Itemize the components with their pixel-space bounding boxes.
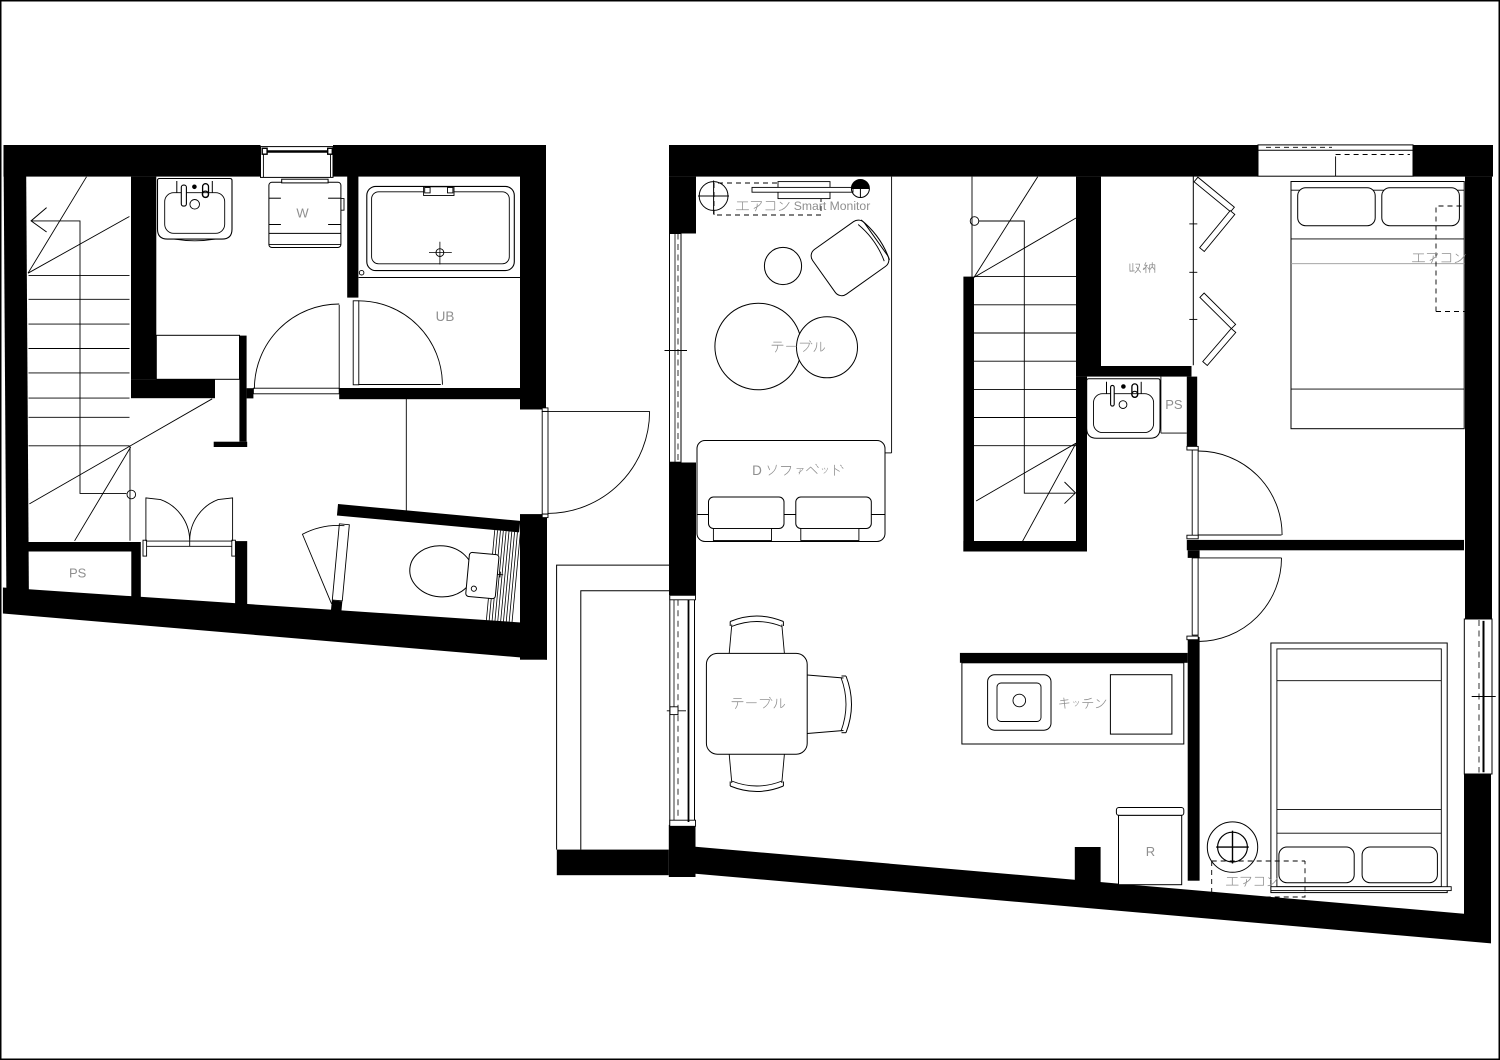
svg-text:R: R	[1146, 844, 1155, 859]
svg-text:D: D	[752, 463, 762, 478]
svg-text:UB: UB	[436, 309, 455, 324]
svg-text:W: W	[296, 206, 309, 221]
svg-text:Smart Monitor: Smart Monitor	[794, 199, 871, 213]
svg-text:PS: PS	[69, 566, 87, 581]
svg-text:PS: PS	[1165, 397, 1183, 412]
